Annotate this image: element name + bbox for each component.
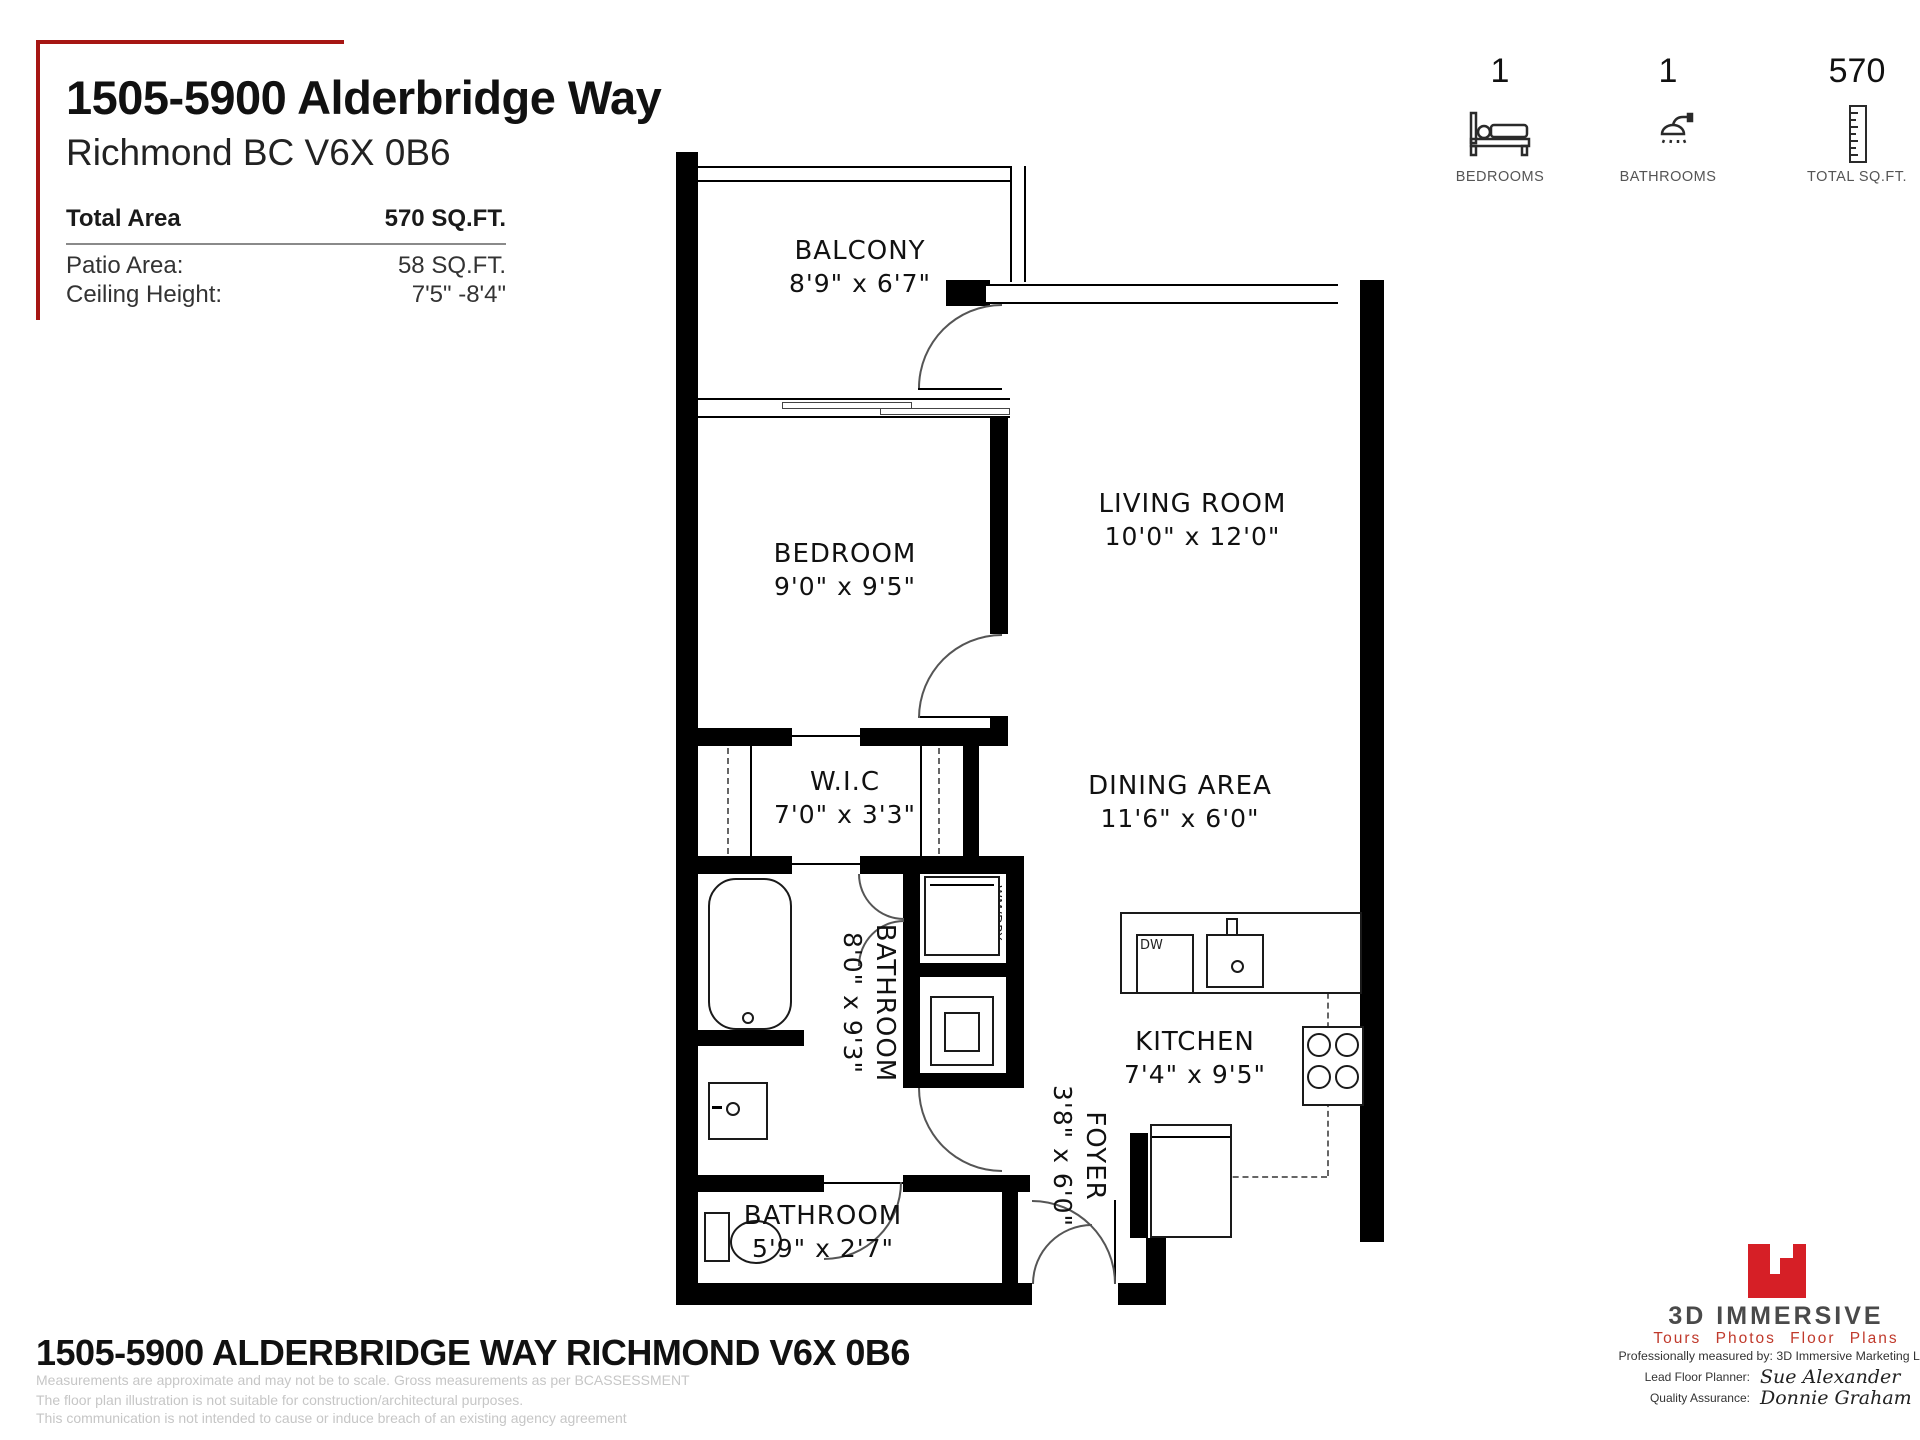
measured-by-text: Professionally measured by: 3D Immersive… <box>1616 1349 1920 1363</box>
tub-faucet <box>742 1012 754 1024</box>
pocket-door-line <box>792 735 860 737</box>
vanity-faucet <box>726 1102 740 1116</box>
bedroom-bottom-wall <box>698 728 792 746</box>
bottom-right-wall <box>1146 1238 1166 1305</box>
planner-signature: Sue Alexander <box>1760 1366 1900 1388</box>
stove-burner <box>1307 1065 1331 1089</box>
sliding-panel <box>880 408 1010 415</box>
small-bathroom-label: BATHROOM 5'9" x 2'7" <box>698 1200 948 1265</box>
laundry-right-wall <box>1006 856 1024 1088</box>
foyer-label: FOYER 3'8" x 6'0" <box>1045 1079 1111 1233</box>
brand-tagline: Tours Photos Floor Plans <box>1646 1330 1906 1348</box>
floor-plan: BALCONY 8'9" x 6'7" BEDROOM 9'0" x 9'5" … <box>0 0 1920 1440</box>
bedroom-room-label: BEDROOM 9'0" x 9'5" <box>700 538 990 603</box>
bottom-wall-left <box>676 1283 1032 1305</box>
pocket-door-line <box>792 863 860 865</box>
balcony-room-label: BALCONY 8'9" x 6'7" <box>700 235 1020 300</box>
main-bathroom-label: BATHROOM 8'0" x 9'3" <box>835 903 901 1103</box>
disclaimer-line: This communication is not intended to ca… <box>36 1410 627 1426</box>
bedroom-right-wall <box>990 416 1008 634</box>
sink-drain <box>1231 960 1244 973</box>
fridge <box>1150 1124 1232 1238</box>
dining-area-label: DINING AREA 11'6" x 6'0" <box>1025 770 1335 835</box>
planner-label: Lead Floor Planner: <box>1640 1370 1750 1384</box>
qa-label: Quality Assurance: <box>1640 1391 1750 1405</box>
logo-inner-square <box>1780 1258 1793 1274</box>
bedroom-bottom-wall <box>860 728 1008 746</box>
sink-faucet <box>1226 918 1238 936</box>
living-room-label: LIVING ROOM 10'0" x 12'0" <box>1025 488 1360 553</box>
quality-assurance-row: Quality Assurance: Donnie Graham <box>1640 1387 1920 1409</box>
disclaimer-line: Measurements are approximate and may not… <box>36 1372 690 1388</box>
laundry-mid-wall <box>903 963 1008 977</box>
foyer-left-wall <box>1002 1192 1018 1283</box>
brand-name: 3D IMMERSIVE <box>1646 1302 1906 1331</box>
bathroom-bottom-wall <box>903 1175 1030 1192</box>
washer-inner-line <box>930 884 994 886</box>
3d-immersive-logo-icon <box>1748 1244 1806 1298</box>
living-top-window <box>986 284 1338 304</box>
balcony-door-arc <box>918 304 1002 388</box>
vanity-tap <box>712 1106 722 1109</box>
bedroom-door-arc <box>918 634 1002 718</box>
laundry-bottom-wall <box>903 1073 1008 1088</box>
footer-address-title: 1505-5900 ALDERBRIDGE WAY RICHMOND V6X 0… <box>36 1332 910 1374</box>
kitchen-room-label: KITCHEN 7'4" x 9'5" <box>1085 1026 1305 1091</box>
bathroom-door-arc <box>918 1088 1002 1172</box>
bathroom-bottom-wall <box>676 1175 824 1192</box>
wic-bottom-wall <box>698 856 792 874</box>
door-leaf <box>918 388 1002 390</box>
dishwasher-label: DW <box>1140 938 1163 953</box>
tub-alcove-wall <box>698 1030 804 1046</box>
left-wall <box>676 152 698 1305</box>
disclaimer-line: The floor plan illustration is not suita… <box>36 1392 523 1408</box>
stove-burner <box>1307 1033 1331 1057</box>
washer-dryer-unit <box>924 876 1000 956</box>
stove-burner <box>1335 1065 1359 1089</box>
laundry-appliance-inner <box>944 1012 980 1052</box>
wic-room-label: W.I.C 7'0" x 3'3" <box>720 766 970 831</box>
qa-signature: Donnie Graham <box>1760 1387 1912 1409</box>
fridge-inner-line <box>1152 1136 1230 1138</box>
fridge-side-wall <box>1130 1133 1148 1238</box>
balcony-top-window <box>698 166 1026 182</box>
lead-floor-planner-row: Lead Floor Planner: Sue Alexander <box>1640 1366 1920 1388</box>
bathtub <box>708 878 792 1030</box>
wic-bottom-wall <box>860 856 1024 874</box>
stove-burner <box>1335 1033 1359 1057</box>
